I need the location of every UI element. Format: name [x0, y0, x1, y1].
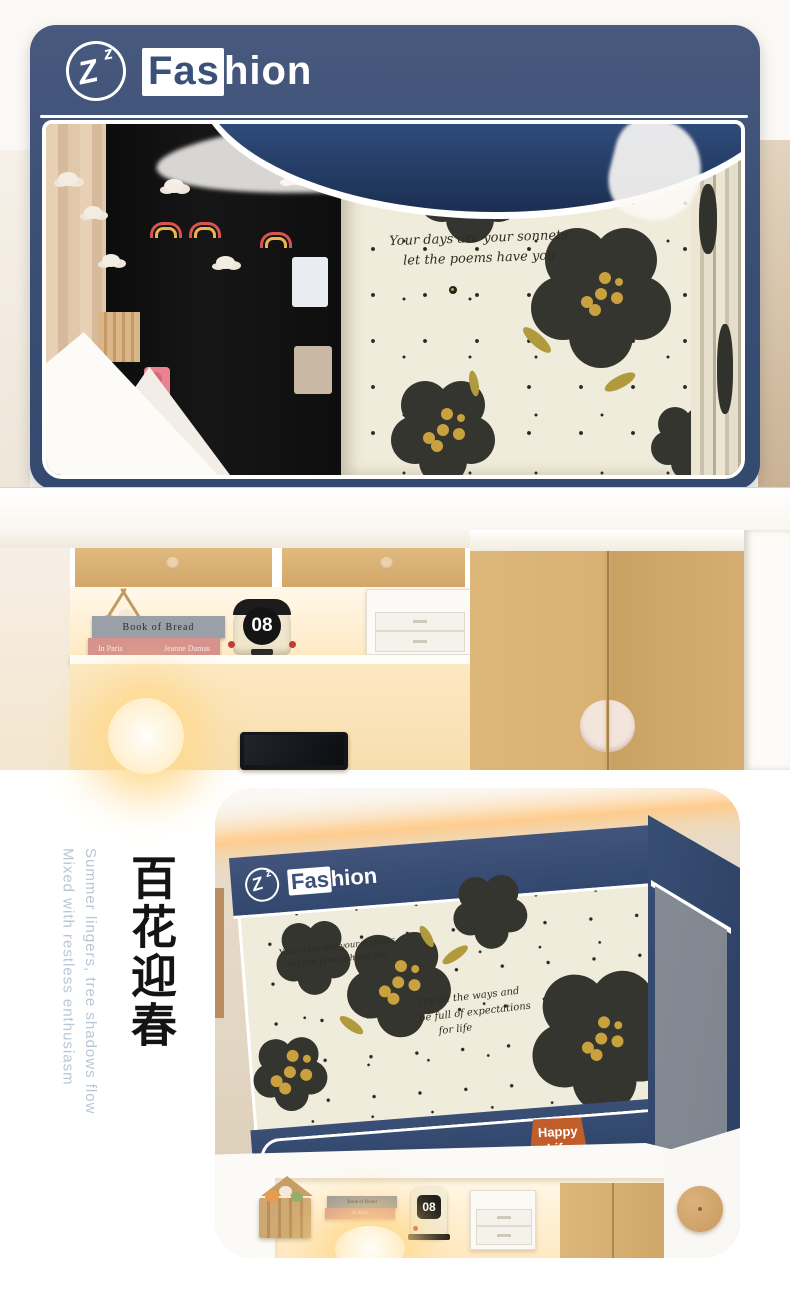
- badge-line1: Happy: [538, 1124, 578, 1141]
- organizer-drawer: [476, 1209, 532, 1226]
- logo-z-small: z: [102, 42, 115, 64]
- logo-z-big: Z: [74, 52, 101, 92]
- flower-motif: [472, 892, 509, 929]
- cabinet-door: [282, 548, 465, 587]
- top-photo: Z z Fashion: [0, 0, 790, 770]
- book-title: Book of Bread: [123, 622, 195, 633]
- product-floral-panel: Your days are your sonnets let the poems…: [238, 886, 675, 1130]
- subtitle-line1: Summer lingers, tree shadows flow: [79, 848, 102, 1178]
- leaf-motif: [520, 323, 555, 356]
- fold-shadow: [717, 324, 733, 414]
- desk-lamp-glow: [108, 698, 184, 774]
- wordmark-boxed: Fas: [142, 48, 224, 96]
- book-spine: Book of Bread: [92, 616, 225, 638]
- zz-logo-icon: Z z: [60, 35, 131, 106]
- upper-cabinets: [70, 548, 470, 587]
- book-spine: Book of Bread: [327, 1196, 397, 1208]
- flower-bloom: [265, 1190, 279, 1202]
- photo-card: [294, 346, 332, 394]
- under-shelf: [70, 664, 470, 770]
- mini-clock: 08: [411, 1186, 447, 1238]
- wall-left: [0, 150, 30, 490]
- fabric-quote-2: Try all the ways and be full of expectat…: [417, 980, 561, 1042]
- wardrobe-side-panel: [744, 530, 790, 770]
- fold-shadow: [699, 184, 717, 254]
- cabinet-knob: [166, 557, 179, 570]
- clock-red-knob: [289, 641, 296, 648]
- brand-banner: Z z Fashion: [30, 25, 760, 117]
- wordmark-boxed: Fas: [287, 866, 332, 895]
- bed-interior: Your days are your sonnets let the poems…: [42, 120, 745, 479]
- flower-motif: [419, 406, 467, 454]
- flower-motif: [272, 1054, 309, 1091]
- ladybug-motif: [449, 286, 457, 294]
- wordmark-rest: hion: [224, 49, 312, 93]
- logo-z-big: Z: [249, 873, 266, 896]
- desk-lamp-glow: [335, 1226, 405, 1258]
- banner-piping: [40, 115, 748, 118]
- subtitle-line2: Mixed with restless enthusiasm: [56, 848, 79, 1178]
- lower-cabinet: [560, 1183, 664, 1258]
- clock-base: [408, 1234, 450, 1240]
- book-title: Book of Bread: [347, 1200, 376, 1205]
- flower-basket: [259, 1198, 311, 1238]
- flower-motif: [569, 262, 633, 326]
- clock-display: 08: [243, 607, 281, 645]
- leaf-motif: [337, 1013, 366, 1037]
- cloud-light-icon: [102, 254, 120, 267]
- cloud-light-icon: [216, 256, 235, 269]
- drawer-organizer: [470, 1190, 536, 1250]
- leaf-motif: [417, 924, 437, 949]
- bottom-photo: Z z Fashion Your days are your sonnets l…: [215, 788, 740, 1258]
- wall-right: [758, 140, 790, 500]
- wood-knob: [677, 1186, 723, 1232]
- organizer-drawer: [476, 1226, 532, 1245]
- brand-wordmark: Fashion: [287, 863, 378, 896]
- rainbow-icon: [260, 232, 292, 248]
- shelf-board: [70, 655, 470, 664]
- book-spine: In Paris: [325, 1208, 395, 1219]
- bed-curtain-frame: Z z Fashion: [30, 25, 760, 490]
- clock-red-knob: [413, 1226, 418, 1231]
- clock-red-knob: [228, 641, 235, 648]
- vertical-subtitle: Summer lingers, tree shadows flow Mixed …: [56, 848, 101, 1178]
- flower-motif: [567, 1004, 636, 1073]
- cloud-light-icon: [58, 172, 78, 186]
- book-title: In Paris: [352, 1211, 367, 1216]
- organizer-drawer: [375, 612, 465, 631]
- brand-wordmark: Fashion: [142, 49, 312, 94]
- wall-wood-strip: [215, 888, 224, 1018]
- organizer-drawer: [375, 631, 465, 652]
- open-shelf: Book of Bread In Paris Jeanne Damas 08: [70, 587, 470, 655]
- vertical-title: 百花迎春: [118, 854, 184, 1064]
- mini-clock-display: 08: [417, 1195, 441, 1219]
- flower-bloom: [279, 1186, 292, 1197]
- zz-logo-icon: Z z: [241, 864, 283, 906]
- flower-leaves: [291, 1192, 303, 1202]
- wardrobe-top-frame: [470, 530, 744, 551]
- photo-card: [292, 257, 328, 307]
- product-detail-image: Z z Fashion: [0, 0, 790, 1307]
- leaf-motif: [440, 942, 470, 967]
- wordmark-rest: hion: [330, 863, 378, 892]
- cabinet-knob: [380, 557, 393, 570]
- wardrobe: [470, 530, 744, 770]
- logo-z-small: z: [264, 867, 273, 880]
- book-title: In Paris: [98, 644, 123, 653]
- bed-curtain-product: Z z Fashion Your days are your sonnets l…: [228, 808, 683, 1157]
- drawer-organizer: [366, 589, 472, 655]
- rainbow-icon: [189, 222, 221, 238]
- leaf-motif: [602, 369, 638, 396]
- book-author: Jeanne Damas: [164, 644, 210, 653]
- tablet-screen: [240, 732, 348, 770]
- cloud-light-icon: [84, 206, 102, 219]
- desk-left-wall: [0, 548, 70, 770]
- rainbow-icon: [150, 222, 182, 238]
- fabric-quote: Your days are your sonnets let the poems…: [388, 226, 569, 273]
- leaf-motif: [467, 370, 480, 397]
